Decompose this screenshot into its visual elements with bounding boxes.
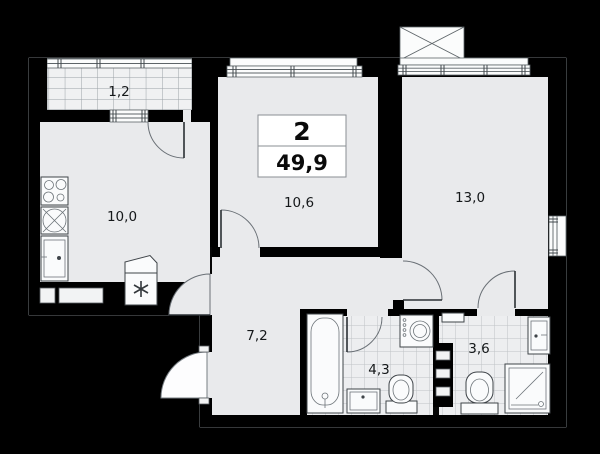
total-area-label: 49,9 (276, 151, 328, 175)
room-count-label: 2 (293, 117, 310, 146)
duct-shaft-icon (433, 343, 453, 407)
bathtub-icon (307, 314, 343, 413)
bedroom-side-window-icon (549, 216, 566, 256)
shelf-icon (442, 313, 464, 322)
shower-cabin-icon (505, 364, 550, 413)
vanity-sink-icon (347, 389, 380, 413)
floor-plan-canvas: 1,2 10,0 10,6 13,0 7,2 4,3 3,6 2 49,9 (0, 0, 600, 454)
living-room-window-icon (227, 58, 362, 77)
stove-icon (41, 177, 68, 205)
washing-machine-icon (400, 315, 433, 347)
info-box: 2 49,9 (258, 115, 346, 177)
toilet-icon-2 (461, 372, 498, 414)
sink-icon (528, 317, 550, 354)
dishwasher-icon (41, 207, 68, 234)
balcony-railing (47, 59, 192, 68)
shower-room-area-label: 3,6 (468, 341, 489, 357)
entrance-door-icon (161, 346, 212, 404)
bedroom-window-icon (398, 58, 530, 75)
bathroom-area-label: 4,3 (368, 362, 389, 378)
bedroom-area-label: 13,0 (455, 190, 485, 206)
floor-plan-svg: 1,2 10,0 10,6 13,0 7,2 4,3 3,6 2 49,9 (0, 0, 600, 454)
kitchen-balcony-window-icon (110, 110, 148, 122)
hallway-area-label: 7,2 (246, 328, 267, 344)
vent-slots (40, 288, 103, 303)
ac-basket-icon (400, 27, 464, 60)
kitchen-area-label: 10,0 (107, 209, 137, 225)
kitchen-sink-icon (41, 236, 68, 281)
fridge-icon (125, 256, 157, 306)
living-room-area-label: 10,6 (284, 195, 314, 211)
balcony-area-label: 1,2 (108, 84, 129, 100)
toilet-icon (386, 375, 417, 413)
